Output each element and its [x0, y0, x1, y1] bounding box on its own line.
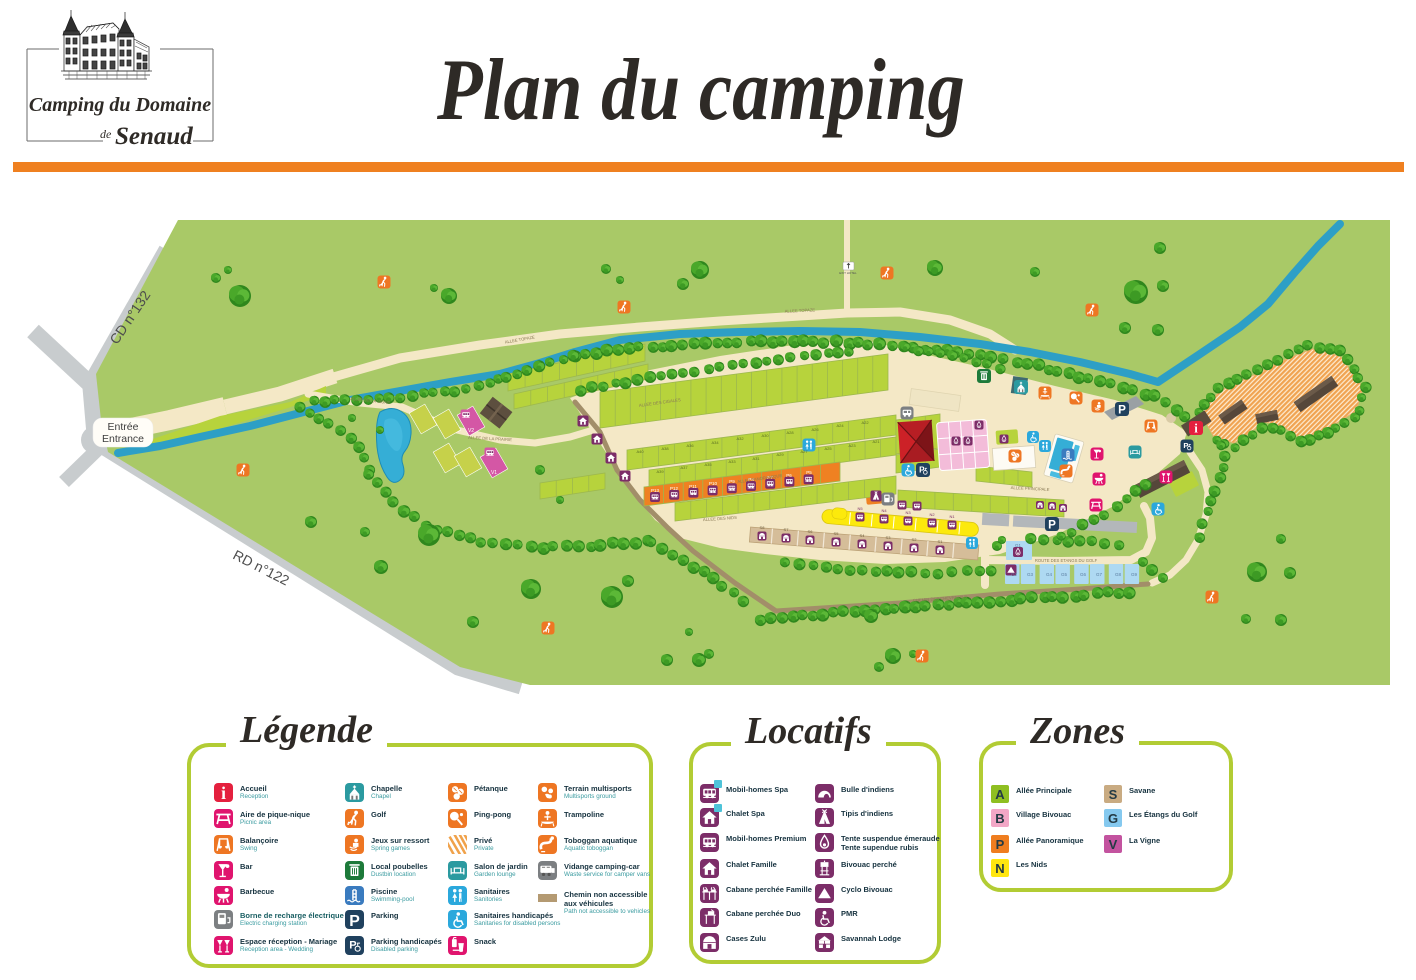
svg-text:A31: A31	[752, 456, 760, 461]
svg-text:A38: A38	[661, 446, 669, 451]
svg-text:i: i	[1194, 422, 1198, 436]
svg-text:Entrance: Entrance	[102, 433, 144, 445]
svg-text:A40: A40	[636, 449, 644, 454]
svg-text:G6: G6	[1080, 572, 1087, 577]
svg-text:ROUTE DES ETANGS DU GOLF: ROUTE DES ETANGS DU GOLF	[1035, 558, 1098, 563]
svg-text:S1: S1	[938, 539, 944, 544]
svg-text:S5: S5	[834, 531, 840, 536]
svg-text:EXIT HOTEL: EXIT HOTEL	[839, 271, 857, 275]
svg-text:S3: S3	[886, 535, 892, 540]
svg-text:P5: P5	[806, 470, 812, 475]
svg-text:N5: N5	[857, 506, 863, 511]
svg-text:G9: G9	[1131, 572, 1138, 577]
svg-text:P: P	[1118, 404, 1126, 417]
svg-text:P11: P11	[689, 484, 697, 489]
svg-text:P: P	[1048, 519, 1056, 532]
svg-text:P10: P10	[709, 481, 718, 486]
svg-text:A24: A24	[836, 423, 844, 428]
svg-text:G4: G4	[1046, 572, 1053, 577]
svg-text:S6: S6	[808, 529, 814, 534]
svg-text:A21: A21	[872, 439, 880, 444]
svg-text:A25: A25	[824, 446, 832, 451]
svg-text:G3: G3	[1027, 572, 1034, 577]
svg-text:A32: A32	[736, 436, 744, 441]
svg-text:G2: G2	[1011, 572, 1018, 577]
svg-text:P9: P9	[729, 479, 735, 484]
svg-text:P13: P13	[651, 488, 660, 493]
svg-text:N1: N1	[949, 514, 955, 519]
svg-text:A27: A27	[800, 449, 808, 454]
svg-text:A28: A28	[786, 430, 794, 435]
svg-text:A29: A29	[776, 452, 784, 457]
svg-text:G8: G8	[1115, 572, 1122, 577]
svg-text:N4: N4	[881, 508, 887, 513]
svg-text:A26: A26	[811, 427, 819, 432]
svg-text:S8: S8	[760, 525, 766, 530]
svg-text:G5: G5	[1061, 572, 1068, 577]
svg-text:P6: P6	[786, 473, 792, 478]
svg-text:V1: V1	[491, 470, 497, 476]
svg-text:P: P	[919, 465, 925, 474]
svg-text:N3: N3	[905, 510, 911, 515]
svg-text:A33: A33	[728, 459, 736, 464]
svg-text:A23: A23	[848, 443, 856, 448]
svg-text:A34: A34	[711, 440, 719, 445]
svg-text:P: P	[349, 912, 360, 928]
svg-text:i: i	[221, 783, 226, 802]
svg-text:A37: A37	[680, 465, 688, 470]
svg-text:G1: G1	[1015, 543, 1022, 548]
svg-text:A39: A39	[656, 469, 664, 474]
svg-text:A30: A30	[761, 433, 769, 438]
svg-text:S7: S7	[784, 527, 790, 532]
svg-text:S4: S4	[860, 533, 866, 538]
svg-text:V2: V2	[468, 428, 474, 434]
svg-text:A36: A36	[686, 443, 694, 448]
svg-text:G7: G7	[1096, 572, 1103, 577]
svg-text:P12: P12	[670, 486, 679, 491]
svg-text:A35: A35	[704, 462, 712, 467]
svg-text:S2: S2	[912, 537, 918, 542]
svg-text:N2: N2	[929, 512, 935, 517]
svg-text:Entrée: Entrée	[108, 421, 139, 433]
svg-text:A22: A22	[861, 420, 869, 425]
